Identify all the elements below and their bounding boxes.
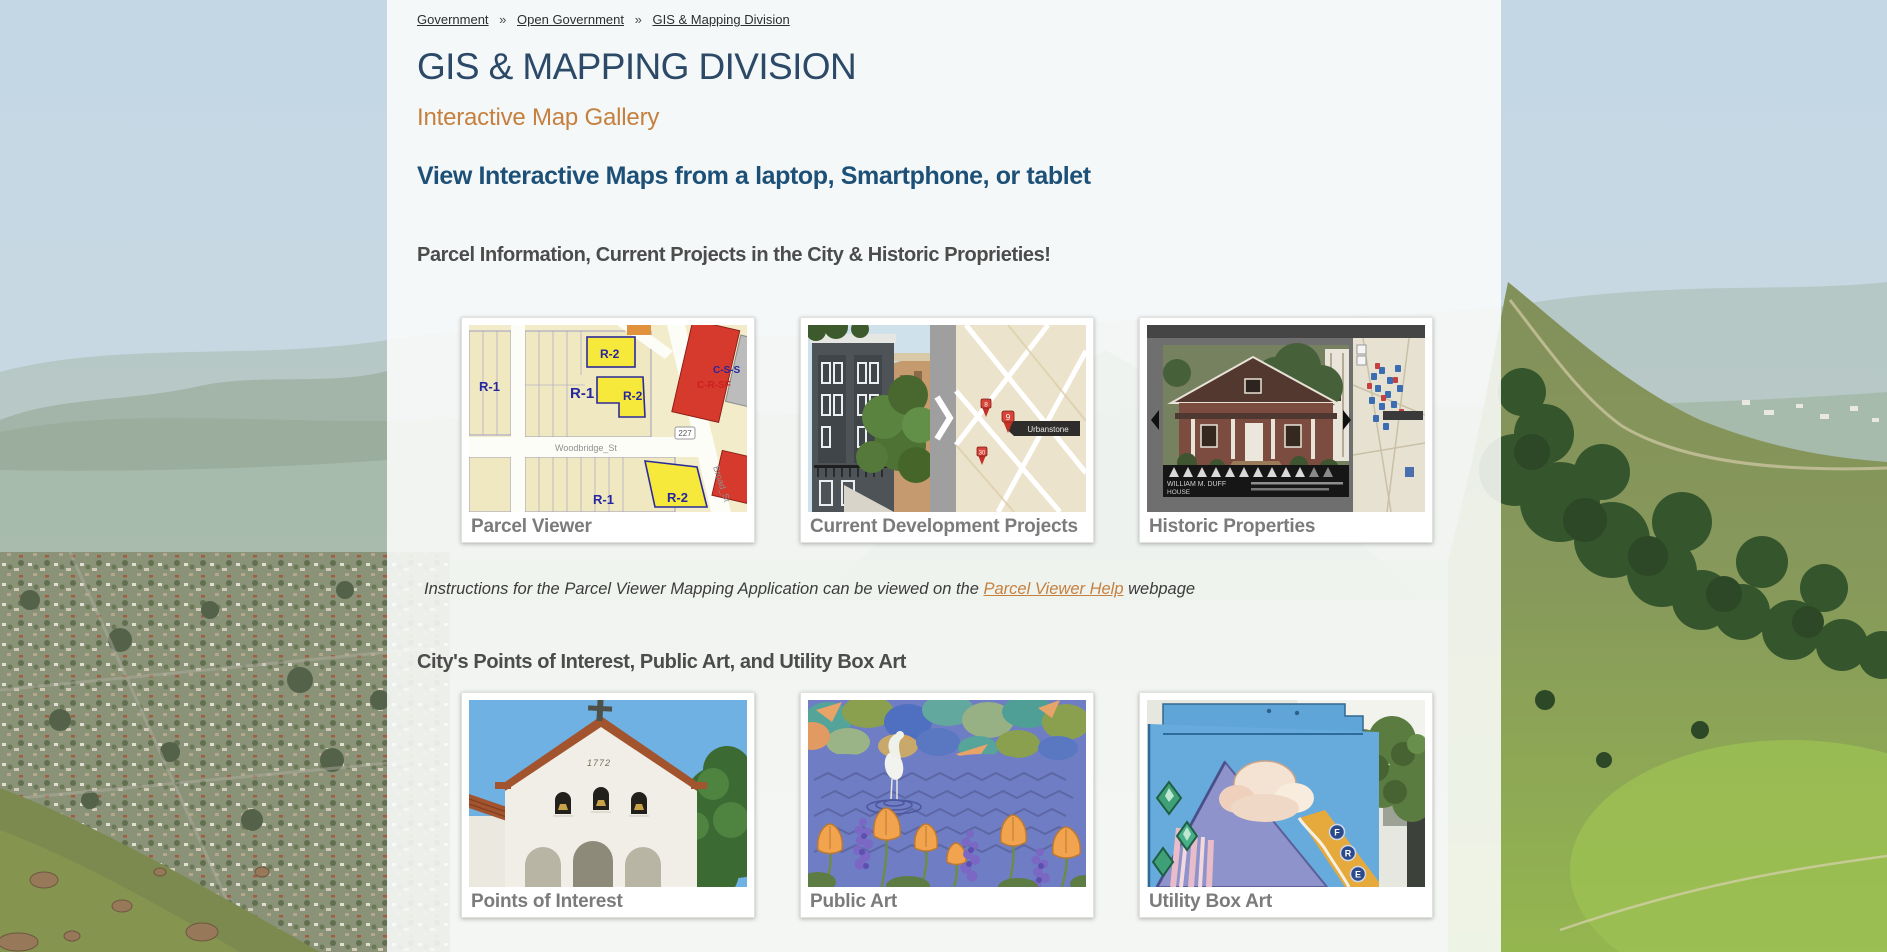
content-panel: Government » Open Government » GIS & Map…: [387, 0, 1501, 952]
map-card-row-2: 1772: [461, 692, 1433, 918]
page-title: GIS & MAPPING DIVISION: [417, 46, 856, 88]
mission-photo-graphic: 1772: [469, 700, 747, 887]
section-intro-parcels: Parcel Information, Current Projects in …: [417, 244, 1051, 267]
section-heading-view-maps: View Interactive Maps from a laptop, Sma…: [417, 162, 1091, 191]
points-of-interest-thumbnail: 1772: [469, 700, 747, 887]
historic-viewer-graphic: WILLIAM M. DUFF HOUSE: [1147, 325, 1425, 512]
card-caption: Current Development Projects: [808, 512, 1086, 542]
historic-house-name-2: HOUSE: [1167, 489, 1191, 496]
card-caption: Public Art: [808, 887, 1086, 917]
breadcrumb-link-open-government[interactable]: Open Government: [517, 12, 624, 27]
breadcrumb-separator: »: [635, 12, 642, 27]
parcel-viewer-help-link[interactable]: Parcel Viewer Help: [984, 580, 1124, 598]
card-parcel-viewer[interactable]: R-1 R-1 R-2 R-2 R-1 R-2 C-S-S C-R-SF Woo…: [461, 317, 755, 543]
zone-label: R-2: [623, 389, 643, 403]
zone-label: R-2: [667, 490, 688, 505]
breadcrumb: Government » Open Government » GIS & Map…: [417, 12, 790, 27]
tile-mural-graphic: [808, 700, 1086, 887]
page-root: Government » Open Government » GIS & Map…: [0, 0, 1887, 952]
zone-label: R-1: [570, 385, 594, 402]
breadcrumb-link-gis-mapping-division[interactable]: GIS & Mapping Division: [652, 12, 789, 27]
card-utility-box-art[interactable]: F R E: [1139, 692, 1433, 918]
section-intro-points-of-interest: City's Points of Interest, Public Art, a…: [417, 651, 906, 674]
map-card-row-1: R-1 R-1 R-2 R-2 R-1 R-2 C-S-S C-R-SF Woo…: [461, 317, 1433, 543]
svg-text:8: 8: [984, 402, 988, 409]
svg-text:E: E: [1355, 870, 1361, 880]
card-public-art[interactable]: Public Art: [800, 692, 1094, 918]
svg-text:R: R: [1345, 849, 1352, 859]
parcel-viewer-thumbnail: R-1 R-1 R-2 R-2 R-1 R-2 C-S-S C-R-SF Woo…: [469, 325, 747, 512]
historic-house-name: WILLIAM M. DUFF: [1167, 481, 1226, 488]
card-points-of-interest[interactable]: 1772: [461, 692, 755, 918]
zone-label: R-1: [479, 379, 500, 394]
instructions-note-prefix: Instructions for the Parcel Viewer Mappi…: [424, 580, 984, 598]
mission-year-inscription: 1772: [587, 758, 611, 768]
svg-text:30: 30: [979, 451, 986, 457]
zoning-map-graphic: R-1 R-1 R-2 R-2 R-1 R-2 C-S-S C-R-SF Woo…: [469, 325, 747, 512]
card-caption: Utility Box Art: [1147, 887, 1425, 917]
instructions-note: Instructions for the Parcel Viewer Mappi…: [424, 580, 1195, 599]
card-caption: Points of Interest: [469, 887, 747, 917]
zone-label: C-R-SF: [697, 380, 731, 391]
route-shield-label: 227: [678, 429, 692, 438]
map-tooltip-label: Urbanstone: [1027, 425, 1069, 434]
card-caption: Historic Properties: [1147, 512, 1425, 542]
page-subtitle: Interactive Map Gallery: [417, 104, 659, 132]
development-projects-thumbnail: Urbanstone 8 9 30: [808, 325, 1086, 512]
utility-box-art-thumbnail: F R E: [1147, 700, 1425, 887]
card-historic-properties[interactable]: WILLIAM M. DUFF HOUSE Historic Propertie…: [1139, 317, 1433, 543]
svg-text:9: 9: [1006, 413, 1011, 422]
svg-text:F: F: [1334, 828, 1340, 838]
instructions-note-suffix: webpage: [1124, 580, 1196, 598]
street-label: Woodbridge_St: [555, 443, 617, 453]
breadcrumb-link-government[interactable]: Government: [417, 12, 489, 27]
zone-label: C-S-S: [713, 365, 741, 376]
card-current-development-projects[interactable]: Urbanstone 8 9 30: [800, 317, 1094, 543]
card-caption: Parcel Viewer: [469, 512, 747, 542]
development-slideshow-graphic: Urbanstone 8 9 30: [808, 325, 1086, 512]
zone-label: R-1: [593, 492, 614, 507]
zone-label: R-2: [600, 347, 620, 361]
historic-properties-thumbnail: WILLIAM M. DUFF HOUSE: [1147, 325, 1425, 512]
painted-utility-box-graphic: F R E: [1147, 700, 1425, 887]
breadcrumb-separator: »: [499, 12, 506, 27]
public-art-thumbnail: [808, 700, 1086, 887]
